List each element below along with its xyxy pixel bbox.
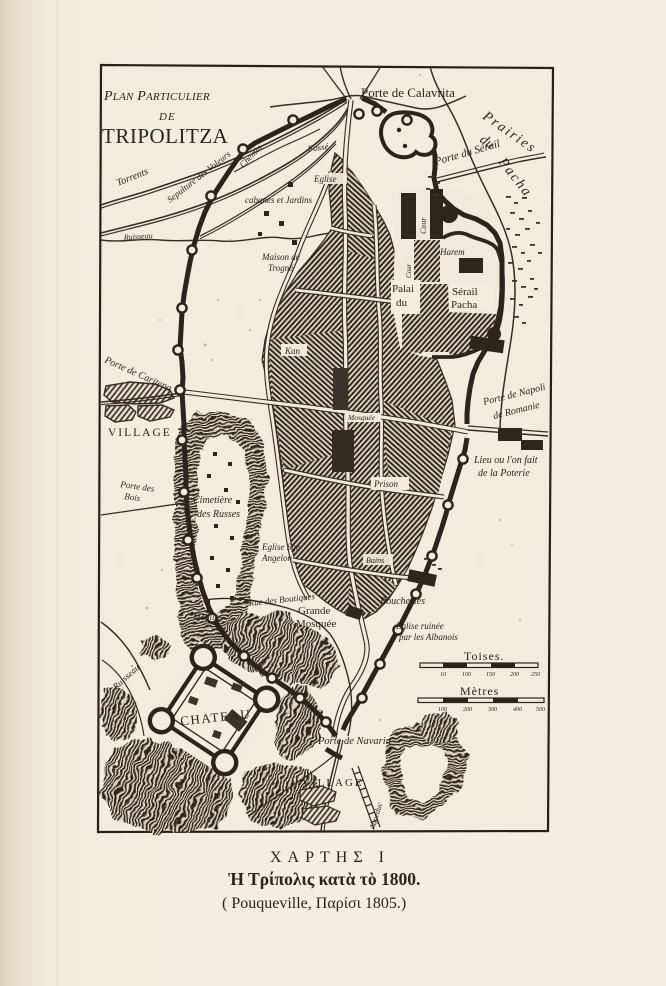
svg-text:Mètres: Mètres — [460, 684, 499, 698]
svg-text:Boucheries: Boucheries — [380, 596, 425, 607]
svg-text:Kan: Kan — [284, 346, 301, 356]
svg-text:Eglise: Eglise — [313, 174, 337, 184]
svg-text:300: 300 — [487, 707, 497, 713]
svg-text:Angelon: Angelon — [261, 553, 292, 563]
svg-text:200: 200 — [510, 672, 519, 678]
svg-text:Trogné: Trogné — [268, 263, 294, 273]
svg-text:Cour: Cour — [419, 217, 428, 234]
svg-text:400: 400 — [513, 706, 522, 713]
svg-text:Porte de Calavrita: Porte de Calavrita — [361, 85, 455, 100]
svg-text:100: 100 — [462, 672, 471, 678]
svg-text:150: 150 — [486, 672, 495, 678]
svg-text:VILLAGE: VILLAGE — [302, 777, 364, 789]
svg-text:par les Albanois: par les Albanois — [398, 632, 458, 642]
svg-text:Moulins: Moulins — [192, 612, 223, 622]
svg-text:Prison: Prison — [373, 479, 399, 489]
svg-text:Palai: Palai — [392, 283, 414, 295]
svg-text:Toises.: Toises. — [464, 649, 505, 663]
svg-text:Eglise Sge: Eglise Sge — [261, 542, 300, 552]
svg-text:Cimetière: Cimetière — [193, 495, 233, 506]
svg-text:Porte de Navarin: Porte de Navarin — [317, 736, 391, 747]
svg-text:Eglise ruinée: Eglise ruinée — [395, 621, 444, 631]
svg-text:de la Poterie: de la Poterie — [478, 468, 530, 479]
svg-text:Grande: Grande — [298, 605, 330, 617]
svg-text:PLAN PARTICULIER: PLAN PARTICULIER — [103, 89, 210, 104]
svg-text:Ἡ Τρίπολις κατὰ τὸ 1800.: Ἡ Τρίπολις κατὰ τὸ 1800. — [228, 869, 420, 889]
svg-text:Mosquée: Mosquée — [347, 413, 376, 422]
svg-text:Cour: Cour — [405, 263, 413, 278]
svg-text:cabanes et Jardins: cabanes et Jardins — [245, 195, 313, 205]
svg-text:des Russes: des Russes — [197, 509, 240, 520]
svg-text:100: 100 — [438, 707, 447, 713]
svg-text:500: 500 — [536, 707, 545, 713]
svg-text:Lieu ou l'on fait: Lieu ou l'on fait — [473, 455, 538, 466]
svg-text:DE: DE — [158, 111, 176, 123]
svg-text:Pacha: Pacha — [451, 299, 477, 311]
svg-text:Bains: Bains — [366, 556, 384, 565]
svg-text:Maison de: Maison de — [261, 252, 300, 262]
svg-text:250: 250 — [531, 672, 540, 678]
svg-text:TRIPOLITZA: TRIPOLITZA — [102, 124, 229, 148]
svg-text:VILLAGE: VILLAGE — [108, 427, 172, 439]
svg-text:Sérail: Sérail — [452, 286, 478, 298]
svg-text:Harem: Harem — [439, 247, 465, 257]
svg-text:10: 10 — [440, 672, 446, 678]
svg-text:( Pouqueville, Παρίσι 1805.): ( Pouqueville, Παρίσι 1805.) — [222, 895, 406, 912]
svg-text:ΧΑΡΤΗΣ Ι: ΧΑΡΤΗΣ Ι — [270, 849, 390, 866]
svg-text:200: 200 — [463, 707, 472, 713]
svg-text:Mosquée: Mosquée — [296, 618, 336, 630]
svg-text:du: du — [396, 297, 408, 309]
